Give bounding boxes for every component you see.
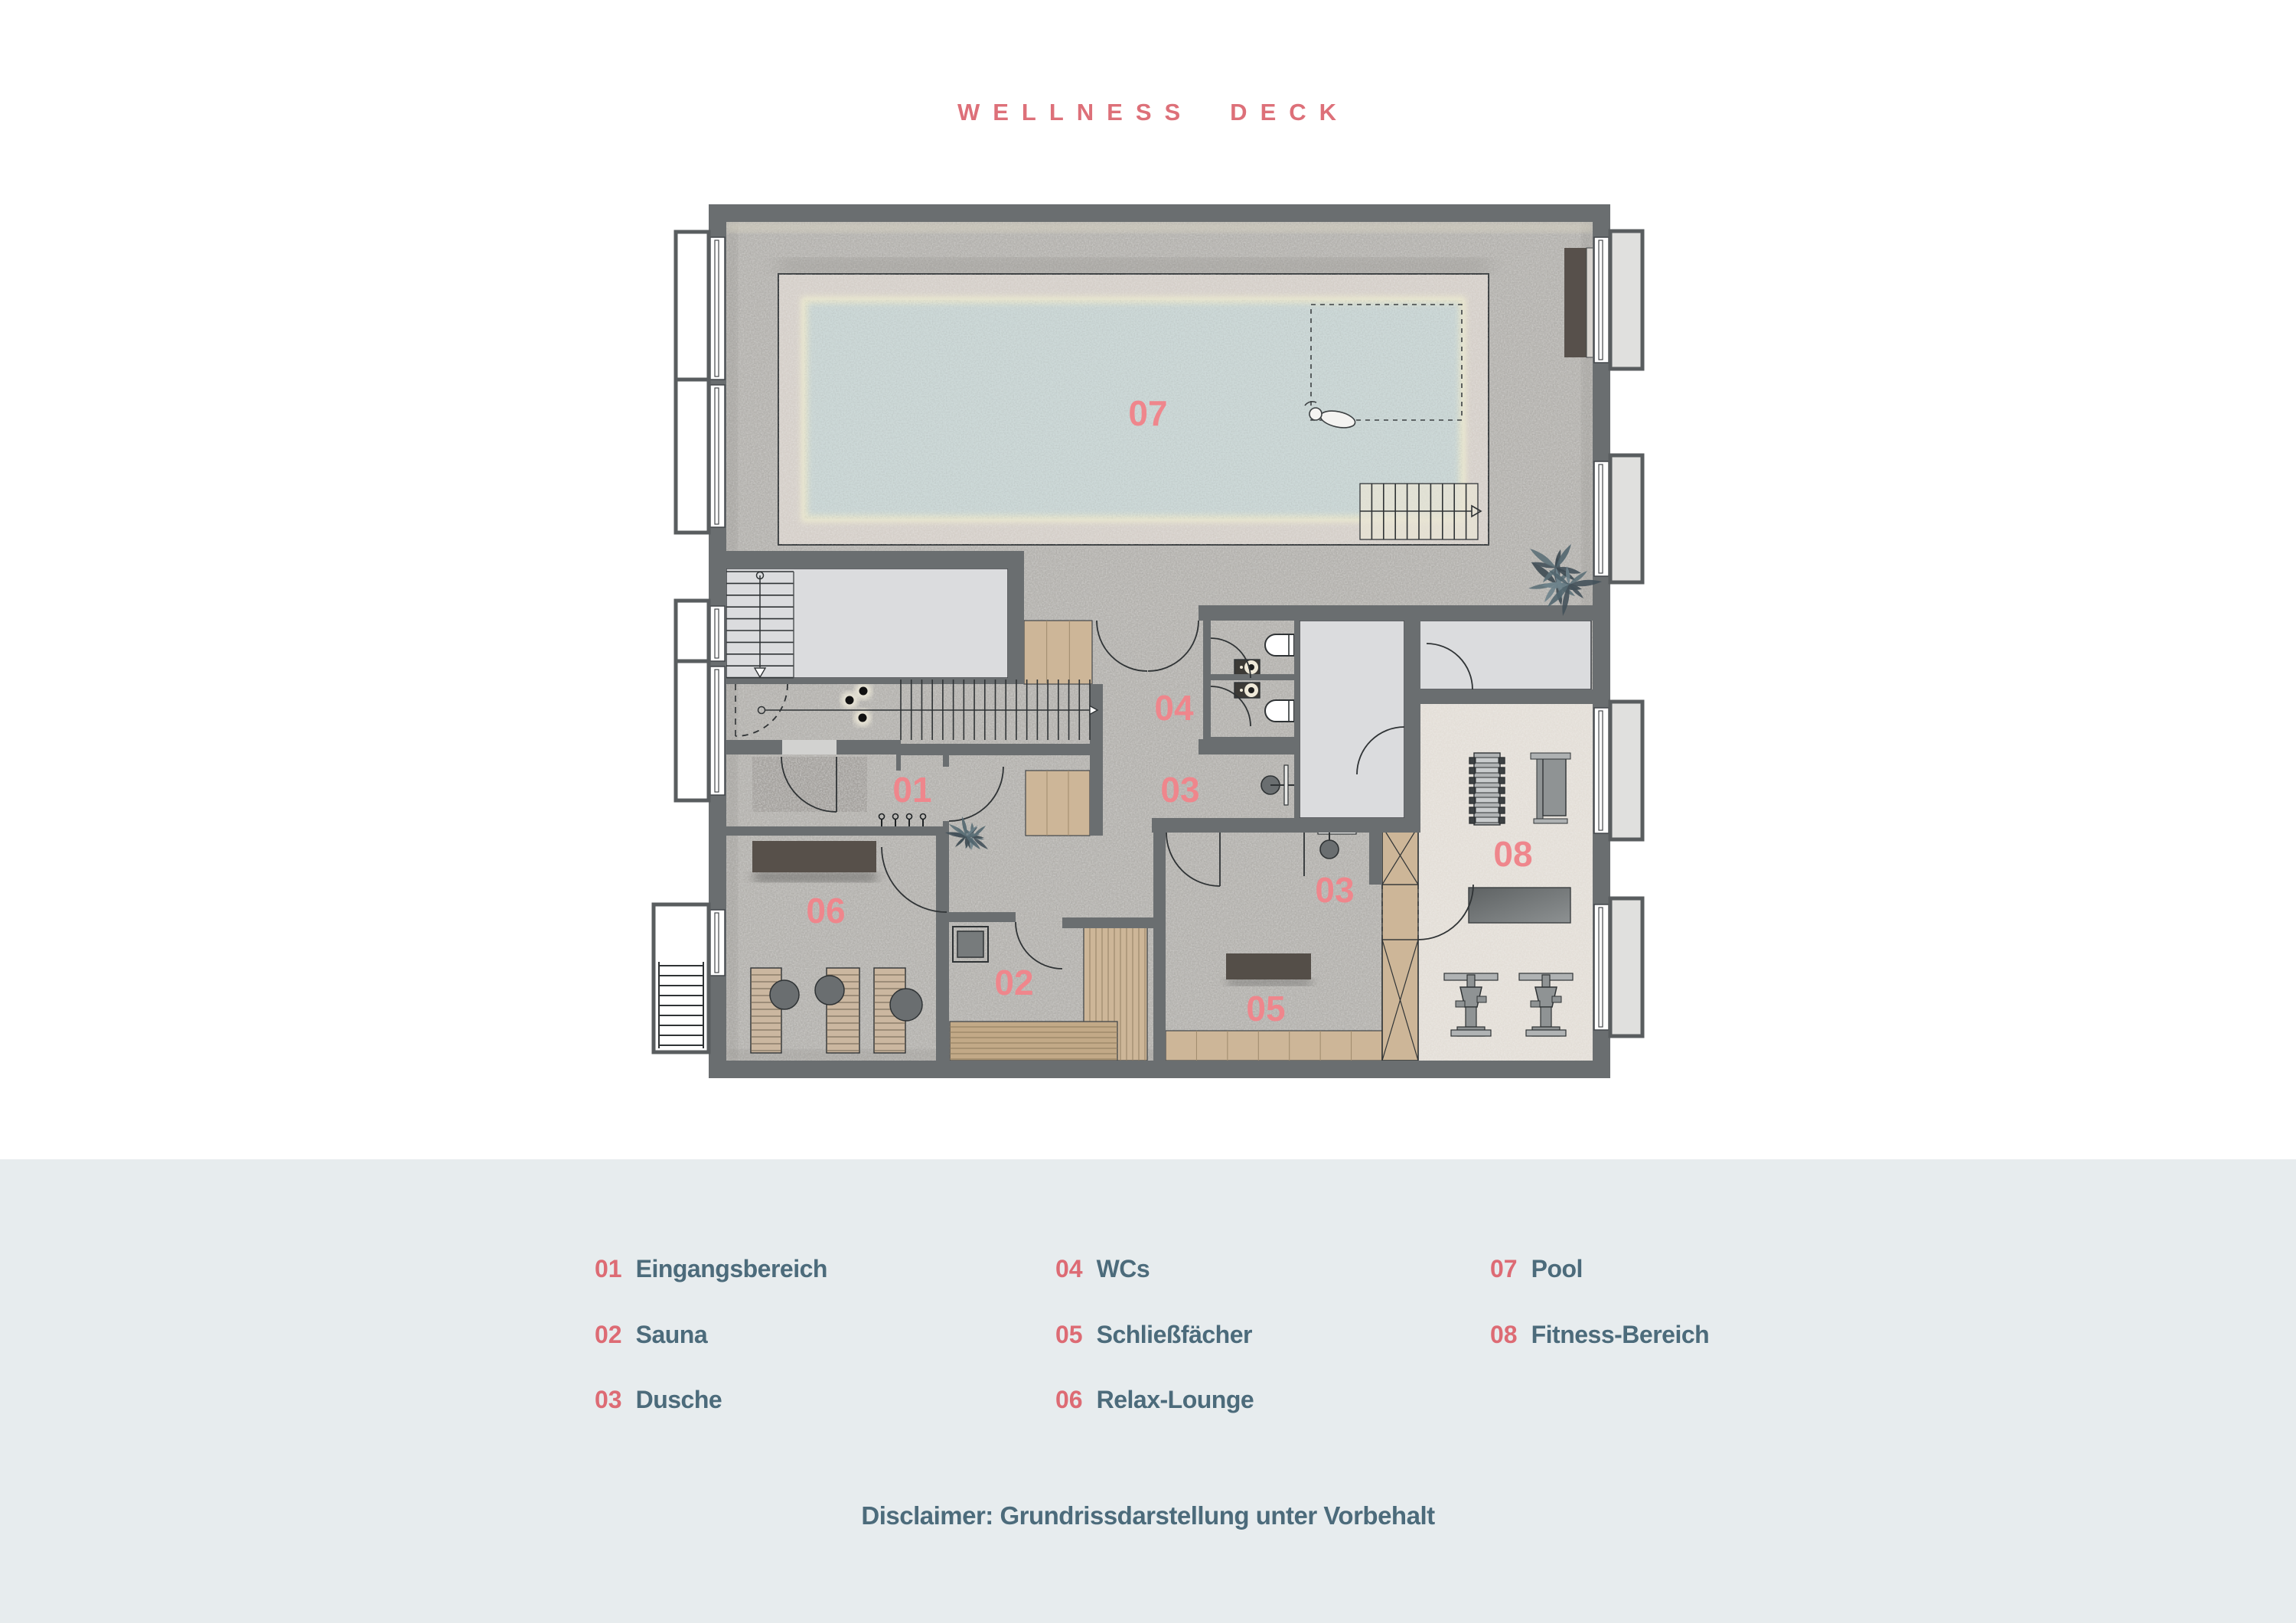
svg-text:03: 03 xyxy=(1315,870,1354,910)
svg-text:07: 07 xyxy=(1128,393,1167,433)
svg-text:04: 04 xyxy=(1154,688,1194,728)
svg-text:03: 03 xyxy=(1160,770,1199,810)
svg-text:05: 05 xyxy=(1246,989,1285,1028)
svg-text:02: 02 xyxy=(994,963,1033,1002)
svg-text:01: 01 xyxy=(892,770,931,810)
svg-text:08: 08 xyxy=(1493,834,1532,874)
svg-text:06: 06 xyxy=(806,891,845,930)
